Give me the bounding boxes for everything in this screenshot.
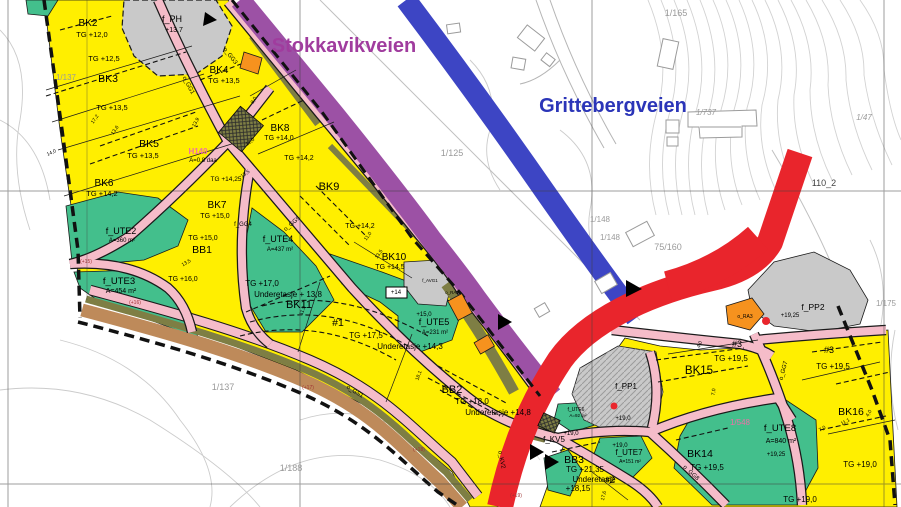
map-label: Underetasje +14,8 [465, 408, 531, 417]
map-label: f_PH [162, 14, 182, 24]
map-label: BK6 [95, 178, 114, 189]
map-label: BK10 [382, 252, 407, 263]
map-label: +19,25 [781, 313, 800, 319]
map-label: A=437 m² [267, 247, 293, 253]
map-label: 1/188 [280, 463, 303, 473]
map-label: TG +15,0 [188, 235, 217, 242]
map-label: TG +21,35 [566, 465, 605, 474]
map-label: TG +16,0 [168, 276, 197, 283]
red-point-marker [762, 317, 770, 325]
map-label: BK11 [286, 299, 312, 311]
map-label: f_KV5 [543, 435, 565, 444]
map-label: TG +15,0 [200, 213, 229, 220]
map-label: A=231 m² [422, 330, 448, 336]
map-label: #3 [824, 345, 834, 355]
map-label: 1/148 [590, 215, 611, 224]
map-label: +19,0 [615, 416, 631, 422]
map-label: +19,0 [563, 431, 579, 437]
map-label: 1/737 [696, 108, 717, 117]
map-label: (+16) [129, 300, 141, 306]
map-label: TG +19,0 [783, 495, 817, 504]
map-label: 1/148 [600, 233, 621, 242]
map-label: 1/175 [876, 299, 897, 308]
road-label-stokkavikveien: Stokkavikveien [272, 35, 417, 57]
plan-map-canvas[interactable]: Stokkavikveien Grittebergveien BK2TG +12… [0, 0, 901, 507]
map-label: +18,15 [566, 484, 591, 493]
map-label: TG +14,0 [264, 135, 293, 142]
map-label: 1/125 [441, 148, 464, 158]
map-label: A=151 m² [619, 459, 641, 465]
map-label: BB2 [442, 384, 463, 396]
map-label: f_UTE5 [419, 317, 450, 327]
map-label: A=360 m² [109, 238, 135, 244]
map-label: A=454 m² [106, 288, 137, 295]
map-label: 1/548 [730, 418, 751, 427]
map-label: BK8 [271, 123, 290, 134]
map-label: #2 [605, 475, 615, 485]
map-label: TG +17,0 [245, 279, 279, 288]
map-label: TG +19,0 [843, 460, 877, 469]
map-label: f_UTE8 [764, 423, 796, 434]
map-label: TG +12,0 [76, 30, 107, 39]
map-label: f_UTE4 [263, 234, 294, 244]
map-label: (+18) [413, 447, 425, 453]
map-label: 1/165 [665, 8, 688, 18]
map-label: TG +13,5 [127, 151, 158, 160]
map-label: A=92 m² [569, 413, 587, 418]
map-label: TG +19,5 [816, 362, 850, 371]
map-label: f_UTE3 [103, 276, 135, 287]
map-label: A=840 m² [766, 438, 797, 445]
map-label: BK2 [79, 18, 98, 29]
map-label: A=0,8 daa [189, 158, 217, 164]
map-label: TG +19,5 [690, 463, 724, 472]
map-label: TG +13,5 [208, 76, 239, 85]
map-label: f_UTE7 [615, 448, 643, 457]
map-label: 14,0 [46, 148, 58, 158]
map-label: TG +12,5 [88, 54, 119, 63]
map-label: TG +14,5 [375, 264, 404, 271]
map-label: (+19) [510, 493, 522, 499]
map-label: (+15) [80, 259, 92, 265]
map-label: BK16 [838, 406, 864, 418]
map-label: BK7 [208, 200, 227, 211]
map-label: BK3 [98, 73, 118, 85]
map-label: TG +18,0 [455, 397, 489, 406]
map-label: BK5 [139, 138, 159, 150]
map-label: 1/137 [56, 73, 77, 82]
map-label: +13,7 [165, 27, 183, 34]
map-label: f_AVG1 [422, 278, 438, 283]
map-label: f_PP1 [615, 382, 637, 391]
zoning-map[interactable]: Stokkavikveien Grittebergveien BK2TG +12… [0, 0, 901, 507]
map-label: BK15 [685, 365, 713, 377]
map-label: f_GG4 [234, 222, 252, 228]
map-label: TG +17,5 [349, 331, 383, 340]
map-label: Underetasje +14,3 [377, 342, 443, 351]
map-label: TG +14,2 [86, 189, 117, 198]
map-label: f_PP2 [801, 302, 824, 312]
map-label: (+17) [302, 385, 314, 391]
map-label: o_RA2 [445, 290, 459, 295]
map-label: TG +13,5 [96, 103, 127, 112]
map-label: 110_2 [812, 178, 836, 188]
map-label: +19,25 [767, 452, 786, 458]
map-label: 75/160 [654, 242, 682, 252]
map-label: #3 [732, 339, 742, 349]
map-label: BK4 [210, 65, 229, 76]
road-label-grittebergveien: Grittebergveien [539, 95, 687, 117]
map-label: o_RA3 [737, 314, 753, 320]
map-label: H140 [188, 147, 208, 156]
map-label: TG +14,2 [345, 223, 374, 230]
map-label: TG +14,25 [211, 176, 242, 183]
arrow-icon [530, 444, 544, 460]
map-label: Underetasje + 13,8 [254, 290, 322, 299]
map-label: #1 [332, 317, 344, 329]
map-label: f_UTE2 [106, 226, 137, 236]
map-label: TG +14,2 [284, 155, 313, 162]
map-label: BK14 [687, 448, 713, 460]
map-label: 1/137 [212, 382, 235, 392]
map-label: BK9 [319, 181, 340, 193]
red-point-marker [611, 403, 618, 410]
map-label: +14 [391, 290, 402, 296]
map-label: TG +19,5 [714, 354, 748, 363]
map-label: 7,0 [711, 388, 718, 396]
map-label: BB1 [192, 244, 212, 256]
map-label: 1/47 [856, 113, 872, 122]
